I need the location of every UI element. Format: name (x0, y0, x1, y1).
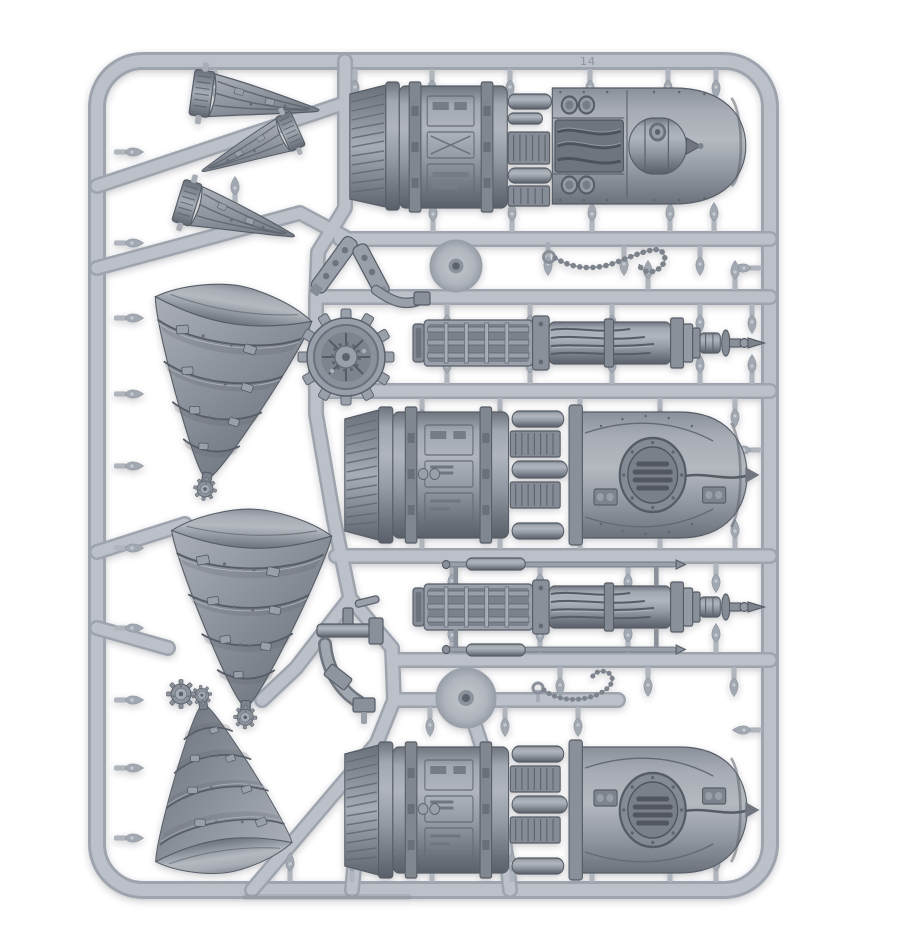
frame-number: 14 (580, 55, 596, 68)
engine-assembly-bottom (345, 740, 760, 880)
lance-barrel-1 (413, 316, 764, 370)
junction-disc-top (430, 240, 482, 292)
sprue-illustration: 14 (0, 0, 920, 950)
drill-cone-large-1 (125, 273, 315, 513)
junction-disc-bottom (436, 668, 496, 728)
drill-cone-large-3 (132, 676, 295, 882)
lance-barrel-2 (413, 558, 764, 656)
loose-gear (167, 680, 196, 709)
engine-assembly-top (350, 82, 746, 212)
sprue-photo: 14 (0, 0, 920, 950)
engine-assembly-middle (345, 405, 760, 545)
embossed-marking (242, 894, 412, 900)
